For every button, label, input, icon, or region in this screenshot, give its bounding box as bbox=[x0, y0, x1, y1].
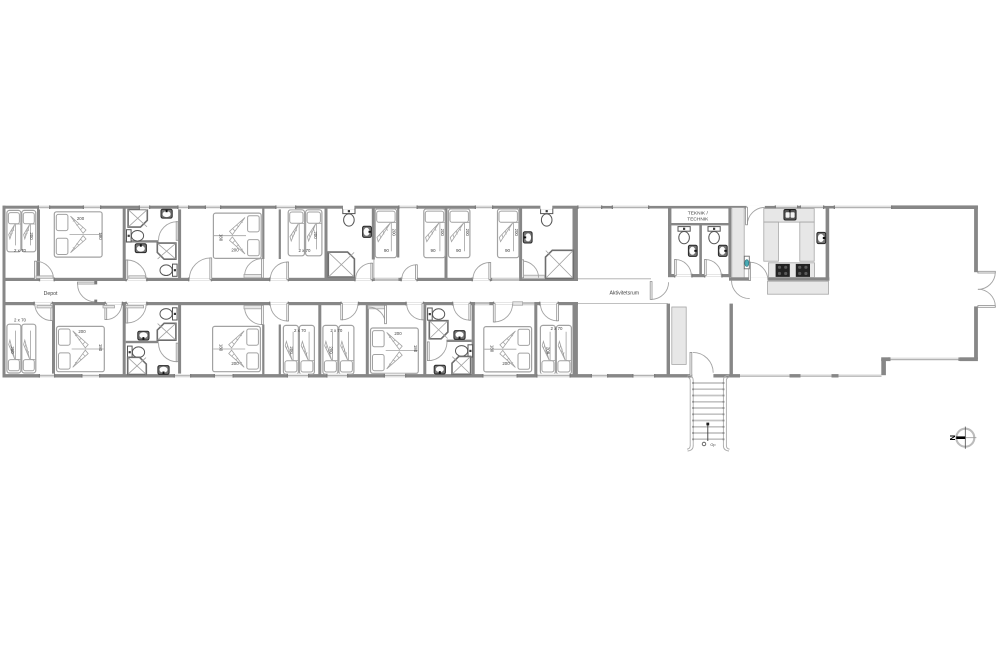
svg-text:2 x 70: 2 x 70 bbox=[299, 248, 312, 253]
svg-text:180: 180 bbox=[219, 344, 224, 352]
svg-text:TECHNIK: TECHNIK bbox=[687, 216, 709, 222]
svg-text:200: 200 bbox=[329, 346, 334, 354]
svg-text:90: 90 bbox=[430, 248, 436, 253]
svg-text:180: 180 bbox=[219, 234, 224, 242]
svg-text:200: 200 bbox=[77, 216, 85, 221]
svg-text:N: N bbox=[948, 435, 957, 440]
svg-text:200: 200 bbox=[545, 347, 550, 355]
svg-text:Aktivitetsrum: Aktivitetsrum bbox=[609, 290, 639, 296]
svg-text:Depot: Depot bbox=[44, 291, 58, 297]
svg-text:200: 200 bbox=[78, 329, 86, 334]
svg-text:200: 200 bbox=[394, 331, 402, 336]
svg-text:200: 200 bbox=[289, 346, 294, 354]
svg-text:90: 90 bbox=[384, 248, 390, 253]
svg-text:180: 180 bbox=[490, 345, 495, 353]
svg-text:200: 200 bbox=[440, 229, 445, 237]
svg-text:2 x 70: 2 x 70 bbox=[294, 328, 307, 333]
svg-text:200: 200 bbox=[502, 361, 510, 366]
svg-text:2 x 70: 2 x 70 bbox=[551, 326, 564, 331]
svg-text:200: 200 bbox=[29, 232, 34, 240]
svg-text:180: 180 bbox=[413, 345, 418, 353]
svg-text:200: 200 bbox=[231, 361, 239, 366]
svg-text:200: 200 bbox=[465, 229, 470, 237]
svg-text:90: 90 bbox=[505, 248, 511, 253]
svg-text:Op: Op bbox=[710, 443, 715, 447]
svg-text:2 x 70: 2 x 70 bbox=[14, 318, 27, 323]
svg-text:180: 180 bbox=[98, 344, 103, 352]
svg-text:2 x 70: 2 x 70 bbox=[330, 328, 343, 333]
svg-text:200: 200 bbox=[231, 248, 239, 253]
svg-text:200: 200 bbox=[392, 229, 397, 237]
svg-text:180: 180 bbox=[98, 232, 103, 240]
svg-text:200: 200 bbox=[313, 231, 318, 239]
svg-text:200: 200 bbox=[514, 229, 519, 237]
svg-text:2 x 70: 2 x 70 bbox=[14, 248, 27, 253]
svg-text:200: 200 bbox=[10, 346, 15, 354]
svg-text:90: 90 bbox=[456, 248, 462, 253]
svg-text:TEKNIK /: TEKNIK / bbox=[688, 211, 709, 217]
